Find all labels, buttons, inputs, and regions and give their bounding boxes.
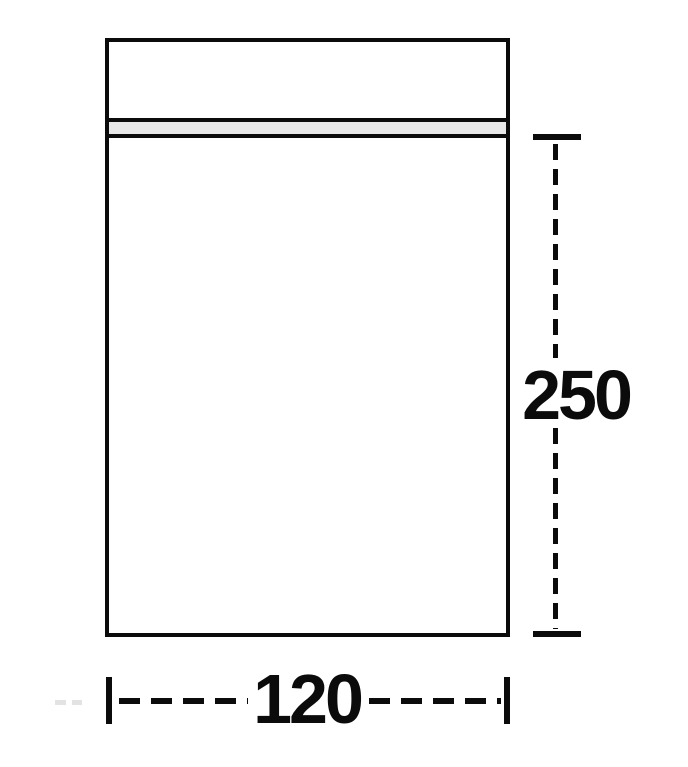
- watermark-dash: [55, 700, 82, 705]
- height-dimension-top-cap: [533, 134, 581, 140]
- height-dimension-dashed-line-upper: [553, 144, 558, 358]
- height-dimension-bottom-cap: [533, 631, 581, 637]
- width-dimension-label: 120: [253, 664, 361, 734]
- width-dimension-dashed-line-right: [369, 698, 501, 704]
- diagram-canvas: 250 120: [0, 0, 688, 767]
- height-dimension-label: 250: [522, 360, 630, 430]
- width-dimension-right-tick: [504, 677, 510, 724]
- width-dimension-left-tick: [106, 677, 112, 724]
- height-dimension-dashed-line-lower: [553, 428, 558, 629]
- width-dimension-dashed-line-left: [119, 698, 248, 704]
- zipper-strip: [109, 118, 506, 138]
